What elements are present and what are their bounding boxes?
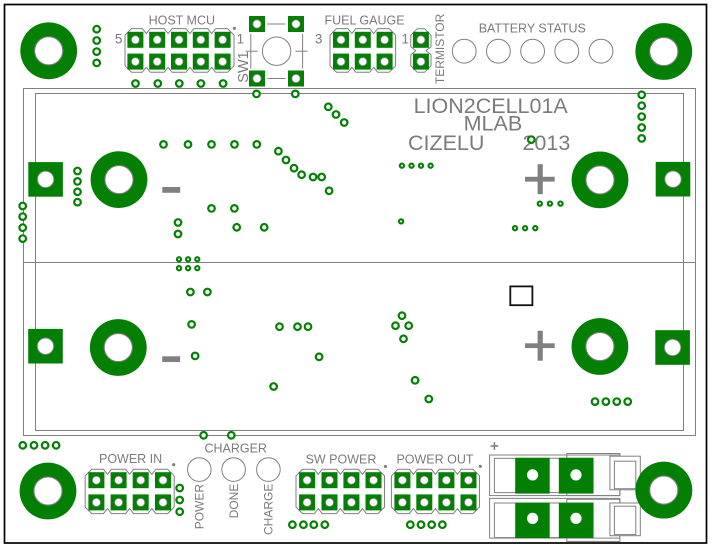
svg-text:CHARGE: CHARGE <box>262 484 276 535</box>
svg-text:DONE: DONE <box>227 484 241 519</box>
svg-text:POWER: POWER <box>193 484 207 530</box>
svg-text:POWER IN: POWER IN <box>99 452 162 466</box>
svg-text:3: 3 <box>315 32 323 47</box>
svg-text:CIZELU: CIZELU <box>408 131 484 155</box>
svg-text:BATTERY STATUS: BATTERY STATUS <box>479 22 586 36</box>
svg-text:TERMISTOR: TERMISTOR <box>433 13 447 84</box>
svg-text:SW1: SW1 <box>236 51 252 82</box>
svg-text:POWER OUT: POWER OUT <box>396 452 473 466</box>
svg-text:CHARGER: CHARGER <box>204 442 267 456</box>
svg-text:FUEL GAUGE: FUEL GAUGE <box>324 13 404 27</box>
svg-text:1: 1 <box>237 32 245 47</box>
svg-text:SW POWER: SW POWER <box>306 452 377 466</box>
svg-text:1: 1 <box>402 32 410 47</box>
svg-text:HOST MCU: HOST MCU <box>149 13 215 27</box>
svg-text:5: 5 <box>115 32 123 47</box>
